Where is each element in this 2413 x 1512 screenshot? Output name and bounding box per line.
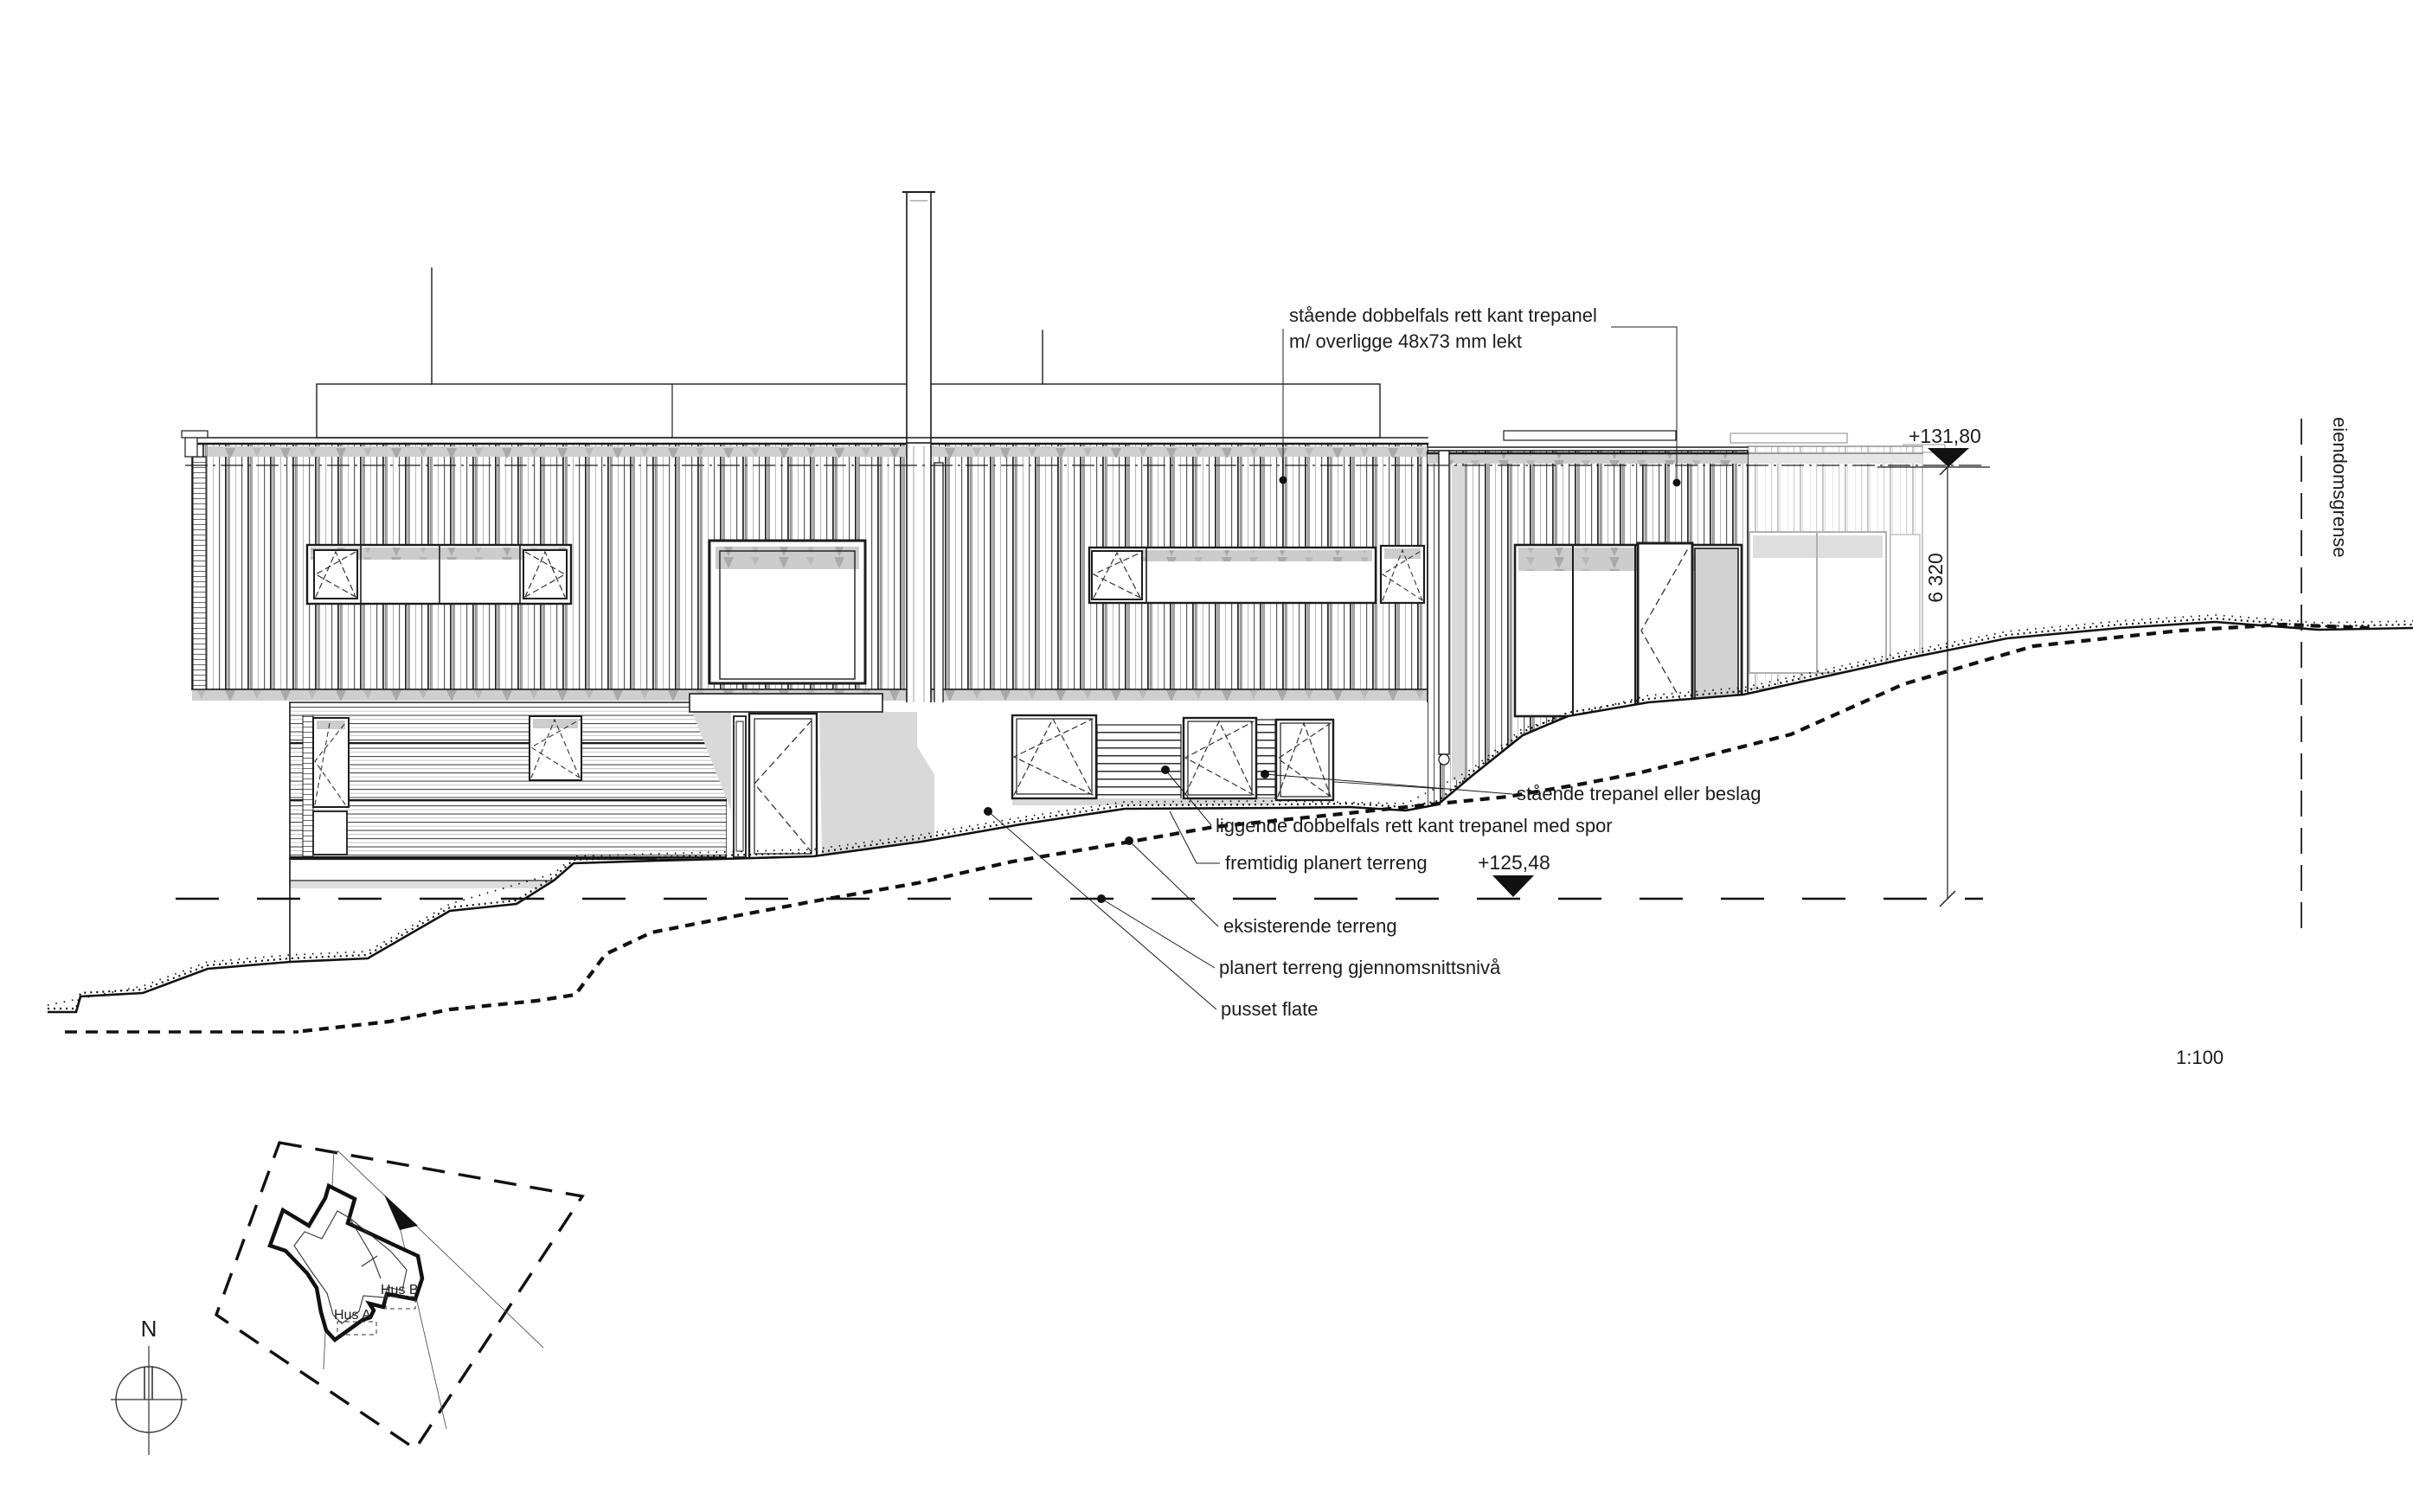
terrain-elevation-value: +125,48 bbox=[1478, 851, 1550, 874]
future-terrain-label: fremtidig planert terreng bbox=[1225, 852, 1428, 874]
roof-eave-trim bbox=[182, 431, 208, 438]
elevation-drawing-page: 6 320 +131,80 +125,48 eiendomsgrense stå… bbox=[0, 0, 2413, 1512]
lying-panel-label: liggende dobbelfals rett kant trepanel m… bbox=[1216, 815, 1613, 836]
lower-window-tall bbox=[303, 715, 349, 856]
north-compass: N bbox=[111, 1316, 187, 1455]
slat-strip bbox=[1256, 720, 1275, 798]
lower-window-small bbox=[529, 716, 581, 780]
upper-end-window bbox=[1381, 546, 1424, 603]
entry-sidelight bbox=[734, 716, 746, 857]
north-label: N bbox=[141, 1316, 157, 1342]
opening-window bbox=[1092, 551, 1142, 599]
basement-window bbox=[1276, 720, 1333, 800]
roof-elevation-value: +131,80 bbox=[1909, 425, 1981, 447]
house-a-label: Hus A bbox=[334, 1308, 371, 1323]
upper-window-band-right-of-chimney bbox=[1089, 548, 1376, 603]
entry-canopy bbox=[690, 694, 882, 712]
downspout-shadow bbox=[1452, 464, 1464, 780]
facade-elevation-svg: 6 320 +131,80 +125,48 eiendomsgrense stå… bbox=[0, 0, 2413, 1512]
large-square-window bbox=[709, 541, 865, 683]
slat-strip bbox=[1097, 725, 1181, 802]
corner-board bbox=[193, 457, 206, 689]
avg-terrain-label: planert terreng gjennomsnittsnivå bbox=[1219, 957, 1501, 978]
site-plan-inset: Hus A Hus B bbox=[216, 1143, 582, 1449]
site-line bbox=[395, 1204, 446, 1429]
property-line-label: eiendomsgrense bbox=[2329, 417, 2351, 558]
cladding-note-line1: stående dobbelfals rett kant trepanel bbox=[1289, 304, 1597, 326]
patio-door-group bbox=[1515, 543, 1742, 718]
chimney bbox=[903, 192, 934, 452]
height-dimension-value: 6 320 bbox=[1924, 553, 1947, 603]
downspout bbox=[1439, 451, 1449, 765]
entry-door bbox=[749, 714, 817, 859]
roof-parapet-box bbox=[317, 268, 1945, 452]
existing-terrain-label: eksisterende terreng bbox=[1223, 915, 1397, 937]
basement-window bbox=[1184, 718, 1256, 798]
standing-panel-label: stående trepanel eller beslag bbox=[1517, 783, 1762, 804]
plaster-label: pusset flate bbox=[1221, 998, 1319, 1020]
ghost-house-section bbox=[1748, 446, 1922, 689]
scale-label: 1:100 bbox=[2176, 1047, 2224, 1068]
upper-window-strip-left bbox=[307, 545, 571, 604]
opening-window bbox=[523, 550, 567, 599]
ghost-window-band bbox=[1749, 532, 1920, 673]
basement-window bbox=[1012, 715, 1096, 798]
cladding-note-line2: m/ overligge 48x73 mm lekt bbox=[1289, 330, 1522, 352]
site-north-pointer bbox=[384, 1195, 418, 1230]
terrace-door bbox=[1638, 543, 1692, 718]
house-b-label: Hus B bbox=[381, 1283, 419, 1297]
opening-window bbox=[314, 550, 357, 599]
